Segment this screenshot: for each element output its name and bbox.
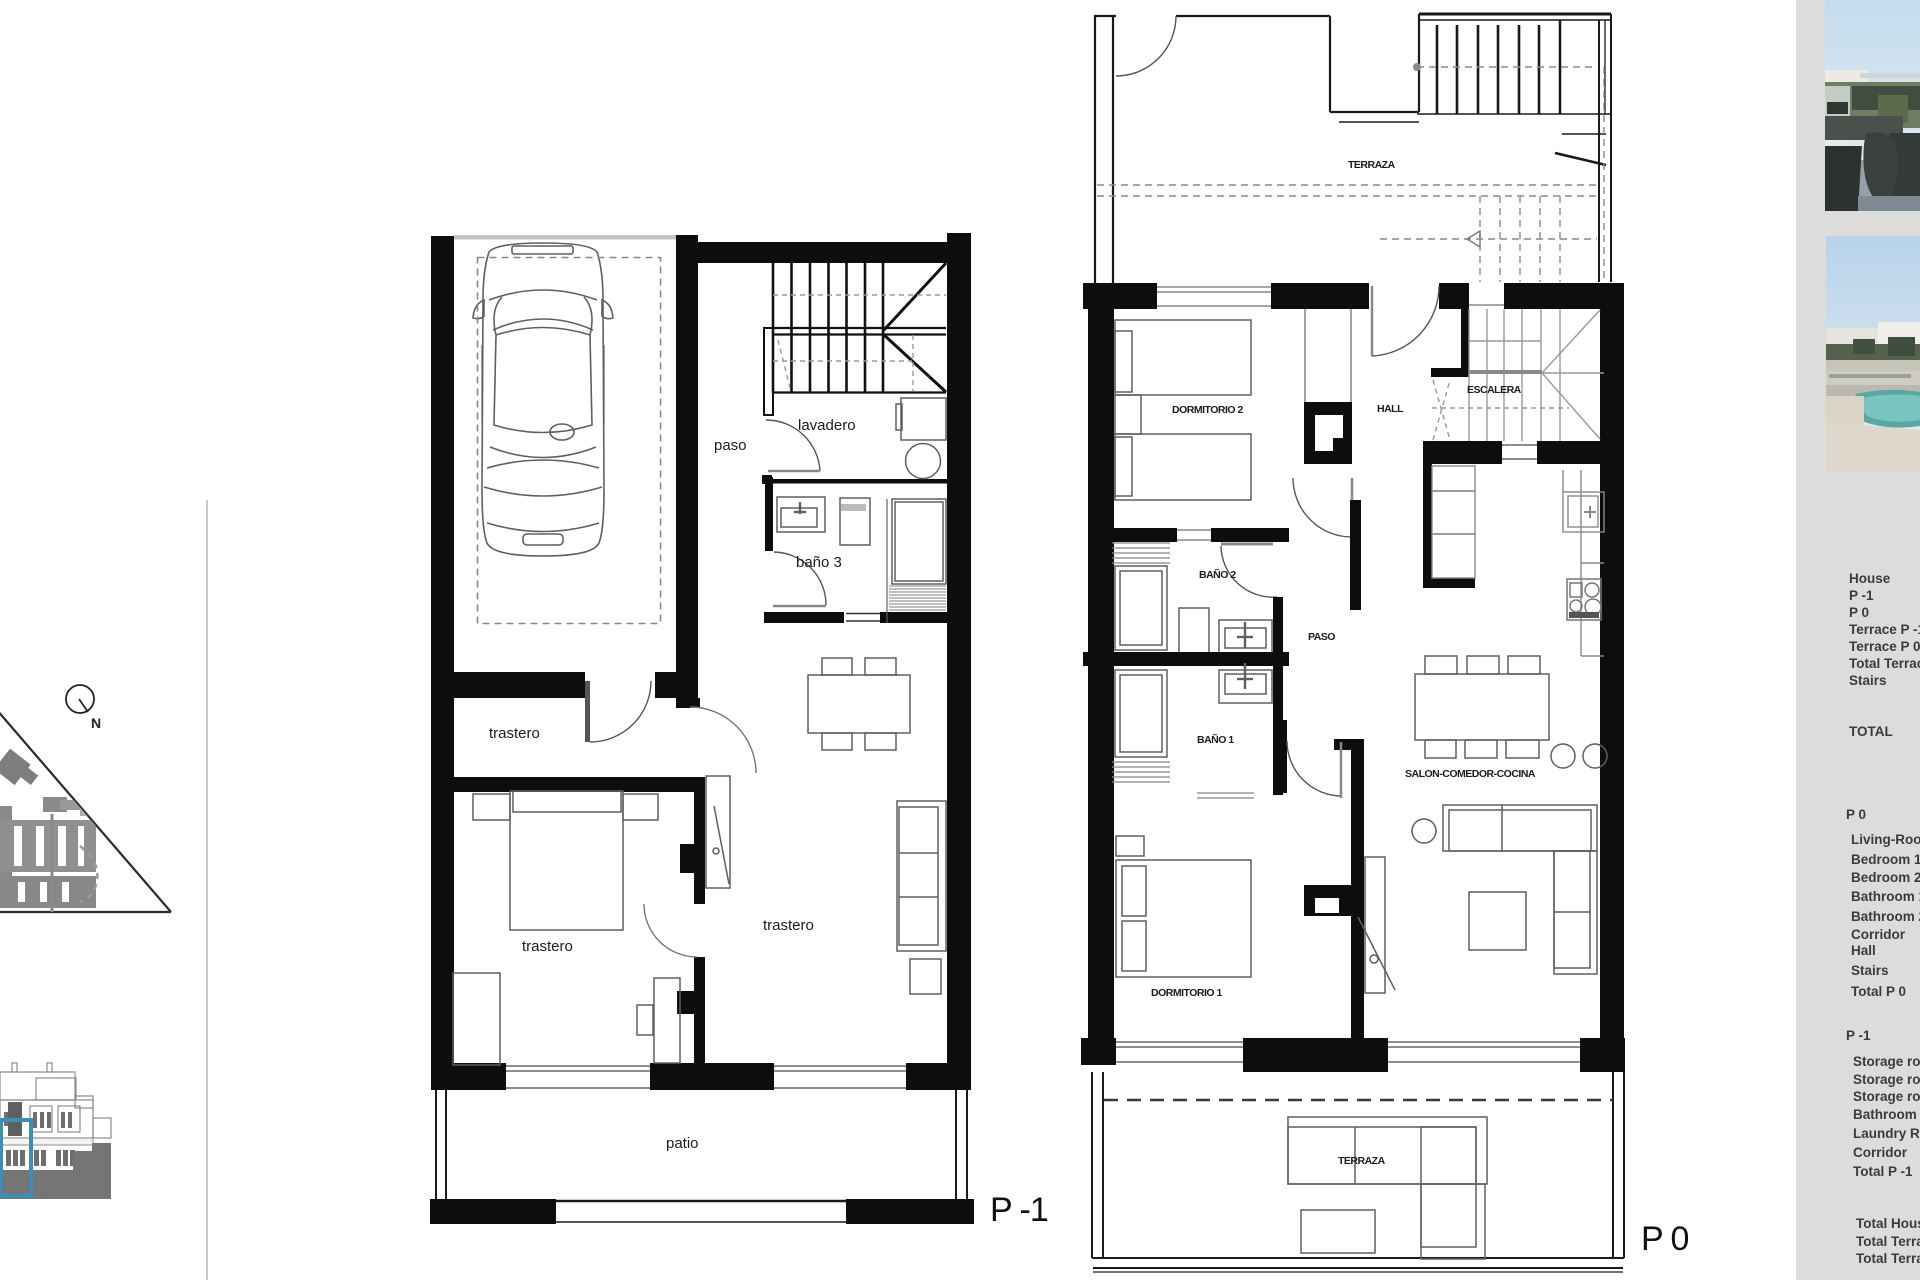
svg-text:DORMITORIO 1: DORMITORIO 1 <box>1151 987 1222 999</box>
svg-text:trastero: trastero <box>489 725 540 742</box>
svg-text:P -1: P -1 <box>1849 588 1874 603</box>
svg-text:lavadero: lavadero <box>798 417 856 434</box>
svg-text:SALON-COMEDOR-COCINA: SALON-COMEDOR-COCINA <box>1405 768 1536 780</box>
svg-text:P -1: P -1 <box>1846 1028 1871 1043</box>
svg-text:BAÑO 1: BAÑO 1 <box>1197 733 1234 746</box>
svg-text:Total Terrace: Total Terrace <box>1849 656 1920 671</box>
svg-text:patio: patio <box>666 1135 699 1152</box>
svg-text:Storage room 3: Storage room 3 <box>1853 1089 1920 1104</box>
svg-text:TERRAZA: TERRAZA <box>1348 159 1396 171</box>
svg-text:Hall: Hall <box>1851 943 1876 958</box>
svg-text:Stairs: Stairs <box>1849 673 1887 688</box>
svg-text:Bedroom 2: Bedroom 2 <box>1851 870 1920 885</box>
svg-text:trastero: trastero <box>522 938 573 955</box>
svg-text:Terrace P 0: Terrace P 0 <box>1849 639 1920 654</box>
svg-text:Storage room 2: Storage room 2 <box>1853 1072 1920 1087</box>
svg-text:Terrace P -1: Terrace P -1 <box>1849 622 1920 637</box>
svg-text:Bathroom 2: Bathroom 2 <box>1851 909 1920 924</box>
svg-text:Corridor: Corridor <box>1853 1145 1908 1160</box>
svg-text:House: House <box>1849 571 1891 586</box>
svg-text:Total Terrace: Total Terrace <box>1856 1251 1920 1266</box>
svg-text:trastero: trastero <box>763 917 814 934</box>
svg-text:P 0: P 0 <box>1846 807 1866 822</box>
svg-text:N: N <box>91 715 101 731</box>
svg-text:HALL: HALL <box>1377 403 1404 415</box>
svg-text:Bathroom 3: Bathroom 3 <box>1853 1107 1920 1122</box>
svg-text:P 0: P 0 <box>1849 605 1869 620</box>
svg-text:Total P -1: Total P -1 <box>1853 1164 1913 1179</box>
svg-text:Total Terrace: Total Terrace <box>1856 1234 1920 1249</box>
svg-text:TOTAL: TOTAL <box>1849 724 1893 739</box>
svg-text:Total P 0: Total P 0 <box>1851 984 1906 999</box>
svg-text:Corridor: Corridor <box>1851 927 1906 942</box>
svg-text:Living-Room-: Living-Room- <box>1851 832 1920 847</box>
svg-text:DORMITORIO 2: DORMITORIO 2 <box>1172 404 1243 416</box>
svg-text:Storage room 1: Storage room 1 <box>1853 1054 1920 1069</box>
svg-text:Bedroom 1: Bedroom 1 <box>1851 852 1920 867</box>
svg-text:P 0: P 0 <box>1641 1220 1689 1258</box>
svg-text:P -1: P -1 <box>990 1191 1048 1229</box>
svg-text:BAÑO 2: BAÑO 2 <box>1199 568 1236 581</box>
svg-text:Total House: Total House <box>1856 1216 1920 1231</box>
svg-text:TERRAZA: TERRAZA <box>1338 1155 1386 1167</box>
svg-text:paso: paso <box>714 437 747 454</box>
svg-text:Bathroom 1: Bathroom 1 <box>1851 889 1920 904</box>
svg-text:Laundry Room: Laundry Room <box>1853 1126 1920 1141</box>
svg-text:ESCALERA: ESCALERA <box>1467 384 1522 396</box>
svg-text:Stairs: Stairs <box>1851 963 1889 978</box>
svg-text:PASO: PASO <box>1308 631 1335 643</box>
svg-text:baño 3: baño 3 <box>796 554 842 571</box>
